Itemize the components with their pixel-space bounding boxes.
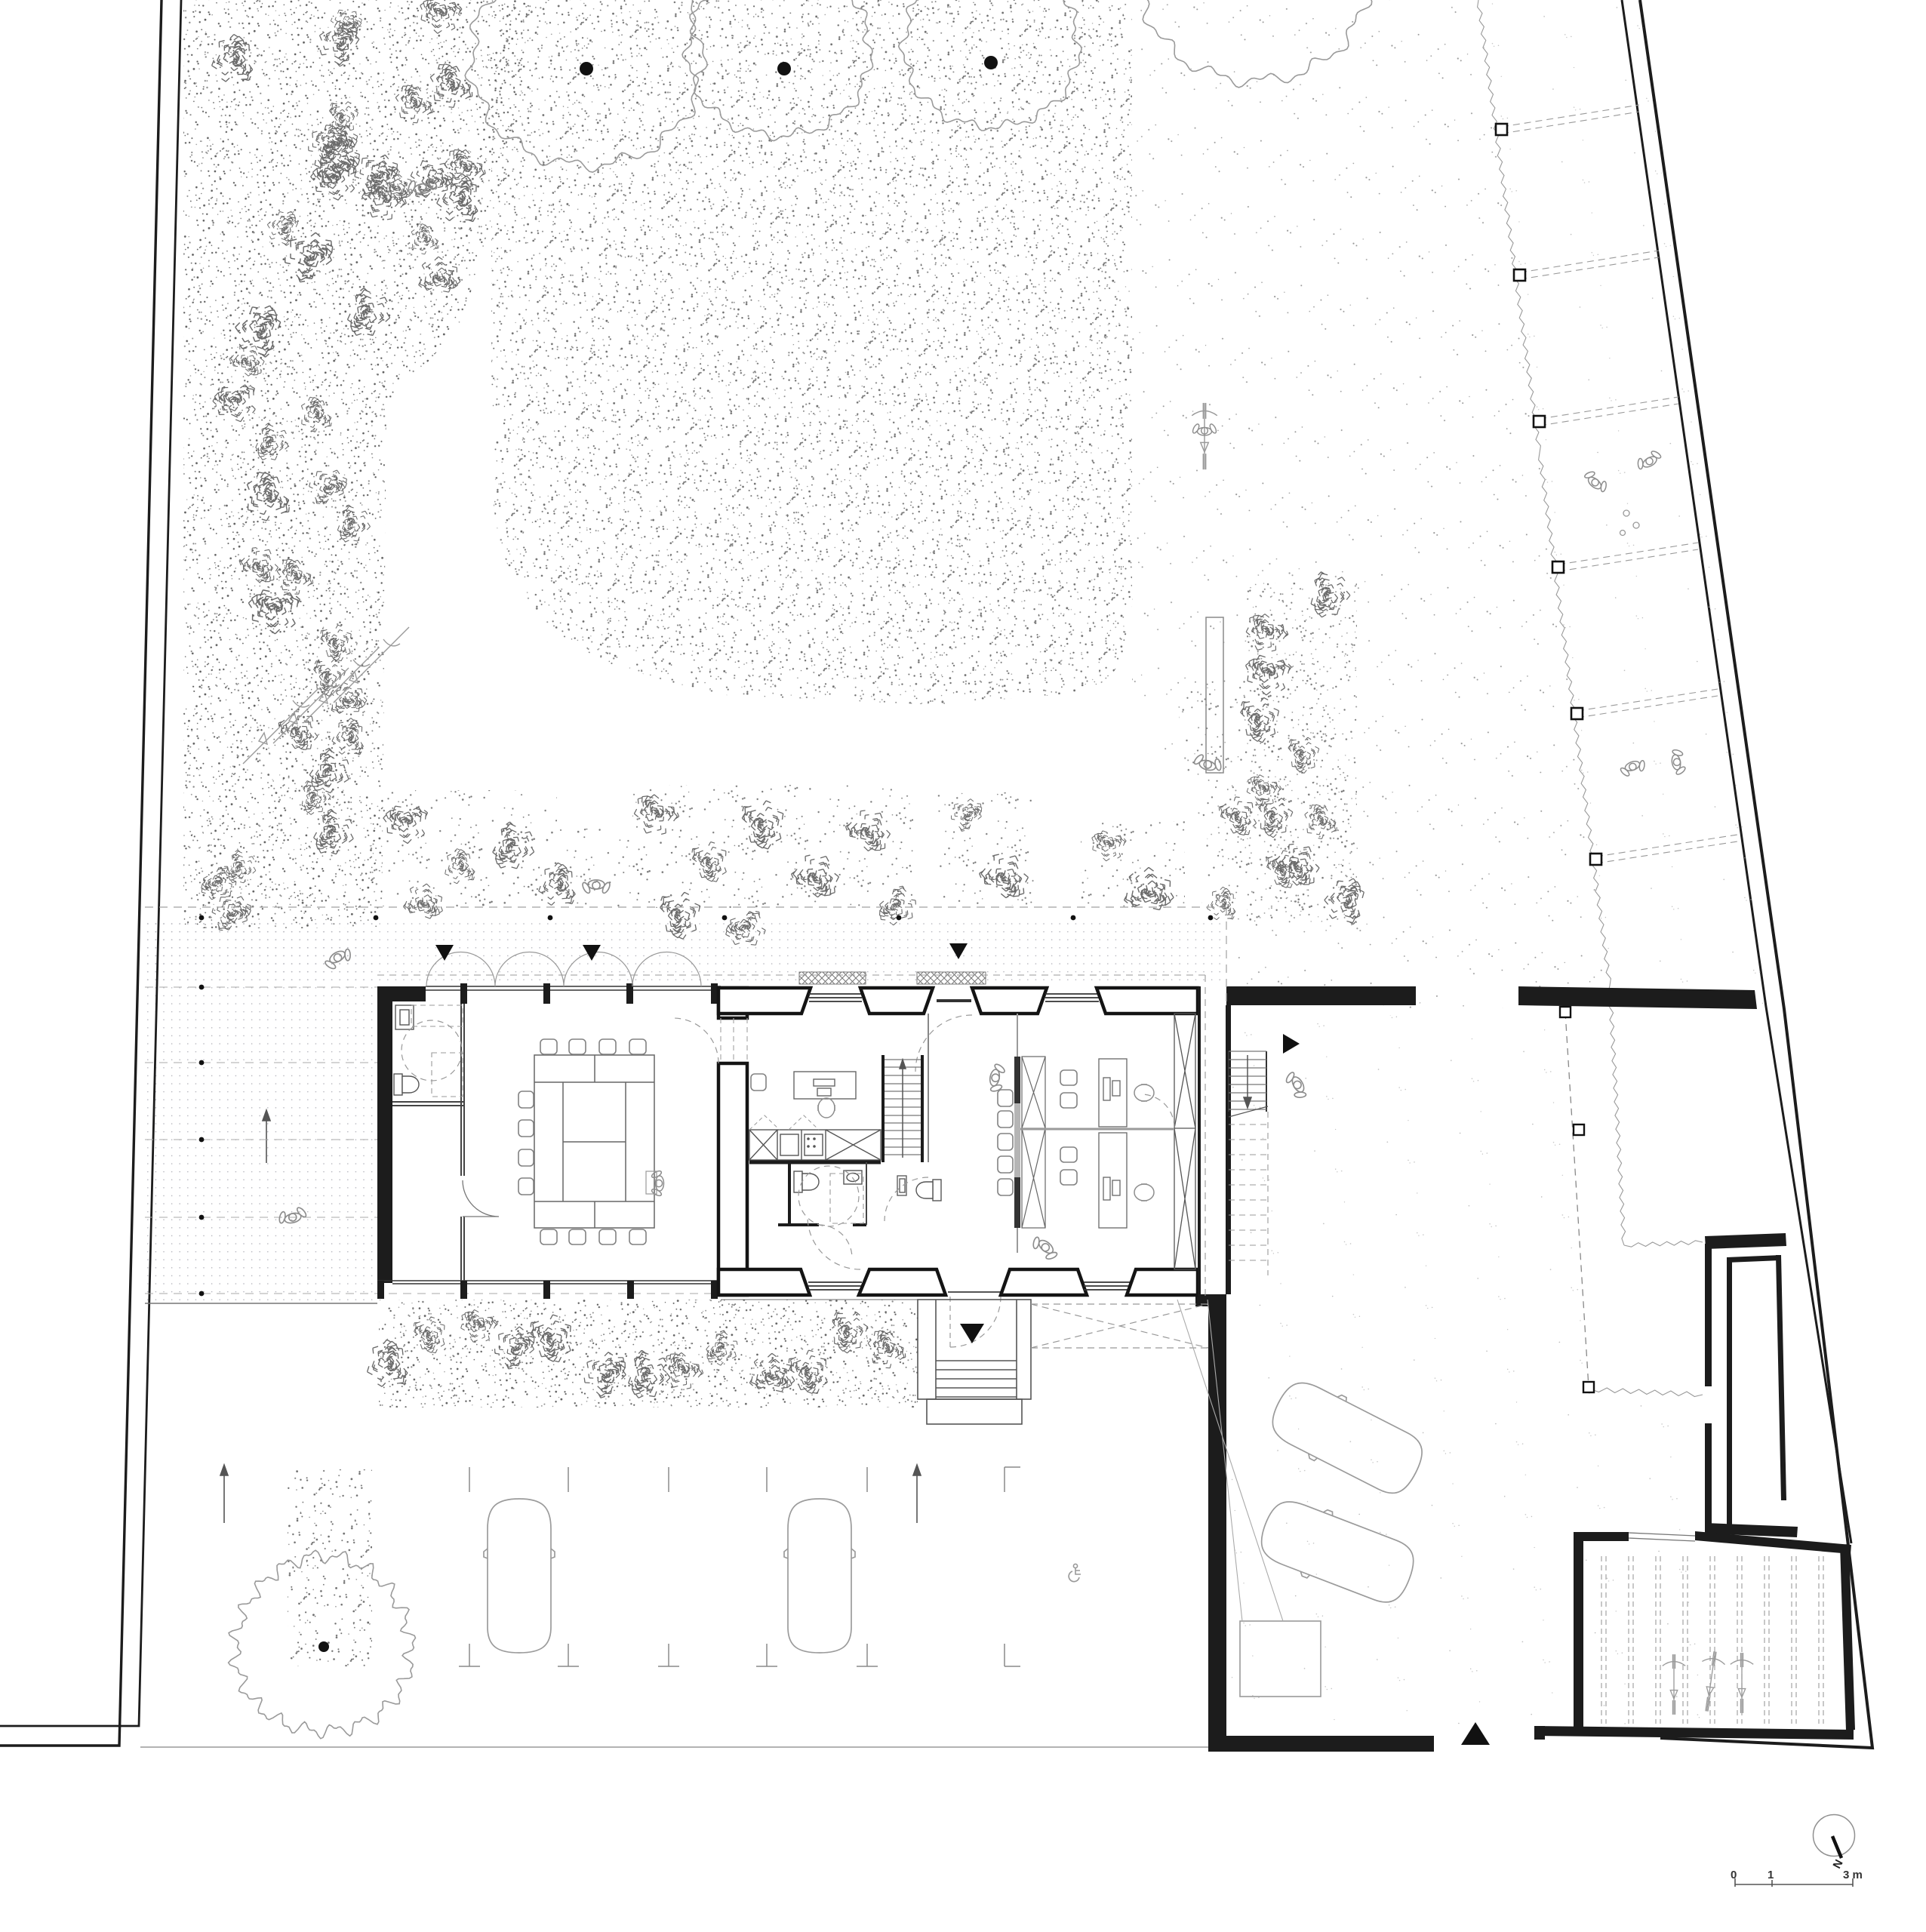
svg-text:0: 0 xyxy=(1731,1869,1737,1881)
svg-text:3 m: 3 m xyxy=(1843,1869,1863,1881)
svg-text:1: 1 xyxy=(1768,1869,1774,1881)
